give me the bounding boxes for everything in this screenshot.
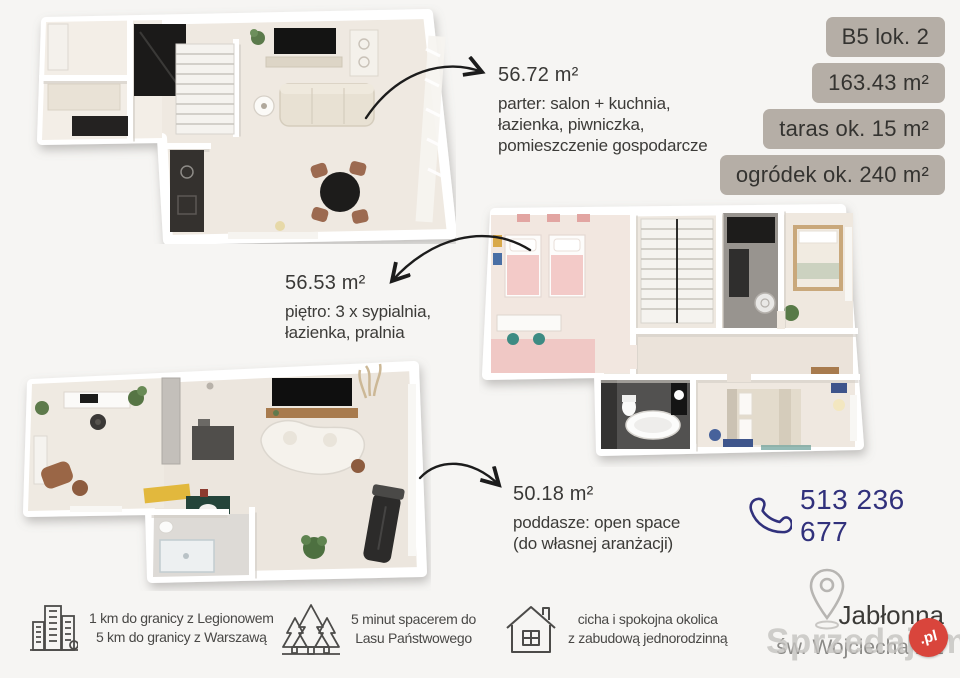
feature-line: cicha i spokojna okolica [568,610,727,629]
floor-desc-line: łazienka, pralnia [285,322,431,343]
feature-text: 5 minut spacerem do Lasu Państwowego [351,610,476,648]
badge-total-area: 163.43 m² [812,63,945,103]
feature-line: 1 km do granicy z Legionowem [89,609,274,628]
phone-number: 513 236 677 [800,484,960,548]
feature-neighborhood: cicha i spokojna okolica z zabudową jedn… [505,601,727,657]
badge-unit-number: B5 lok. 2 [826,17,945,57]
floor-area-label: 50.18 m² [513,483,680,506]
annotation-poddasze: 50.18 m² poddasze: open space (do własne… [513,483,680,554]
floorplan-ground-floor-render [28,4,456,244]
forest-trees-icon [282,602,340,656]
info-badges: B5 lok. 2 163.43 m² taras ok. 15 m² ogró… [720,17,945,195]
listing-flyer: 56.72 m² parter: salon + kuchnia, łazien… [0,0,960,678]
floor-desc-line: piętro: 3 x sypialnia, [285,301,431,322]
feature-distance: 1 km do granicy z Legionowem 5 km do gra… [30,600,274,656]
contact-phone: 513 236 677 [746,484,960,548]
phone-icon [746,491,792,541]
floor-area-label: 56.53 m² [285,272,431,295]
feature-line: 5 km do granicy z Warszawą [89,628,274,647]
feature-text: 1 km do granicy z Legionowem 5 km do gra… [89,609,274,647]
feature-text: cicha i spokojna okolica z zabudową jedn… [568,610,727,648]
feature-line: 5 minut spacerem do [351,610,476,629]
floor-desc-line: pomieszczenie gospodarcze [498,135,708,156]
badge-garden-area: ogródek ok. 240 m² [720,155,945,195]
annotation-parter: 56.72 m² parter: salon + kuchnia, łazien… [498,64,708,156]
floor-area-label: 56.72 m² [498,64,708,87]
floor-desc-line: łazienka, piwniczka, [498,114,708,135]
floor-desc-line: (do własnej aranżacji) [513,533,680,554]
feature-line: Lasu Państwowego [351,629,476,648]
feature-forest: 5 minut spacerem do Lasu Państwowego [282,602,476,656]
floor-desc-line: poddasze: open space [513,512,680,533]
feature-line: z zabudową jednorodzinną [568,629,727,648]
city-buildings-icon [30,600,78,656]
floorplan-first-floor-render [479,199,891,467]
floor-desc-line: parter: salon + kuchnia, [498,93,708,114]
badge-terrace-area: taras ok. 15 m² [763,109,945,149]
floorplan-attic-render [14,344,431,591]
annotation-pietro: 56.53 m² piętro: 3 x sypialnia, łazienka… [285,272,431,343]
house-icon [505,601,557,657]
